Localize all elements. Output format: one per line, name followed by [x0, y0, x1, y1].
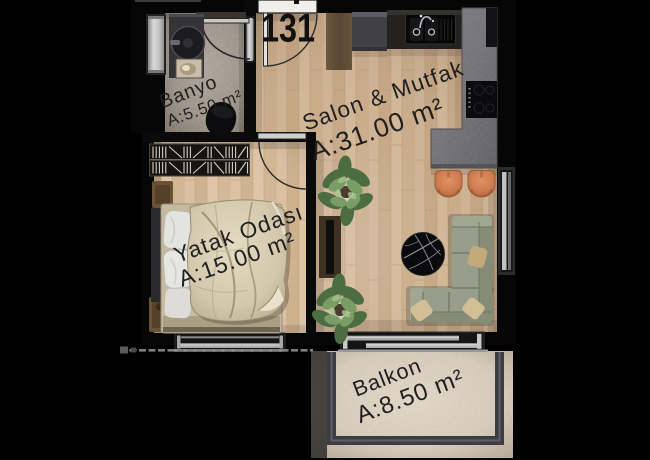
svg-text:131: 131 — [261, 7, 315, 51]
